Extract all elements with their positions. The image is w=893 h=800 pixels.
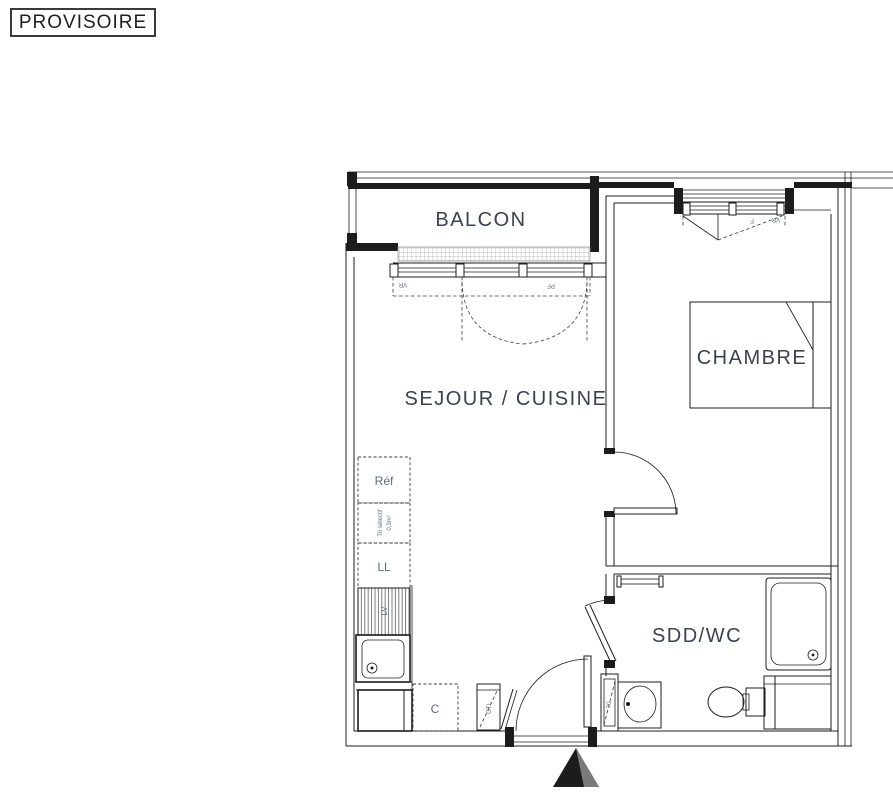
wall-chambre-sdd bbox=[606, 566, 838, 574]
duct-width-label: 70 bbox=[607, 701, 613, 708]
balcony-floor-hatch bbox=[398, 247, 590, 261]
room-label-sdd-wc: SDD/WC bbox=[652, 625, 742, 647]
shower-tray bbox=[766, 578, 831, 670]
room-label-balcon: BALCON bbox=[435, 209, 526, 231]
partition-sejour-chambre bbox=[604, 196, 677, 566]
chambre-window: F VR bbox=[674, 188, 831, 240]
sdd-fixtures bbox=[617, 576, 831, 729]
recycling-label-line2: 0,3m² bbox=[387, 515, 393, 530]
dishwasher-label: LV bbox=[380, 606, 389, 616]
window-tag-f: F bbox=[750, 217, 754, 223]
recycling-box bbox=[358, 503, 410, 543]
bath-cabinet bbox=[764, 676, 831, 729]
fridge-label: Réf bbox=[375, 474, 394, 488]
facade-top-lines bbox=[348, 172, 893, 189]
floor-plan-page: PROVISOIRE bbox=[0, 0, 893, 800]
kitchen-sink bbox=[356, 635, 410, 682]
cooker-label: C bbox=[431, 702, 440, 716]
gtl-cabinet: GTL bbox=[477, 684, 517, 730]
chambre-door-swing bbox=[614, 452, 677, 514]
sdd-door-swing bbox=[585, 600, 616, 663]
window-tag-vr-chambre: VR bbox=[771, 216, 780, 222]
gtl-label: GTL bbox=[487, 702, 493, 714]
sejour-window: VR PF bbox=[390, 263, 606, 344]
window-tag-pf: PF bbox=[547, 282, 555, 288]
room-label-sejour-cuisine: SEJOUR / CUISINE bbox=[405, 388, 608, 410]
entry-door bbox=[505, 656, 599, 787]
window-tag-vr: VR bbox=[398, 281, 407, 287]
kitchen-strip: GTL bbox=[356, 457, 517, 731]
floor-plan-svg: VR PF F VR bbox=[0, 0, 893, 800]
room-label-chambre: CHAMBRE bbox=[697, 347, 808, 369]
recycling-label-line1: Tri sélectif bbox=[378, 509, 384, 536]
french-door-swing bbox=[462, 277, 587, 344]
duct-70: 70 bbox=[601, 674, 618, 731]
washing-machine-label: LL bbox=[377, 560, 391, 574]
towel-rail bbox=[617, 576, 663, 587]
washbasin bbox=[618, 682, 661, 728]
entrance-arrow bbox=[553, 748, 599, 787]
toilet bbox=[708, 687, 765, 717]
